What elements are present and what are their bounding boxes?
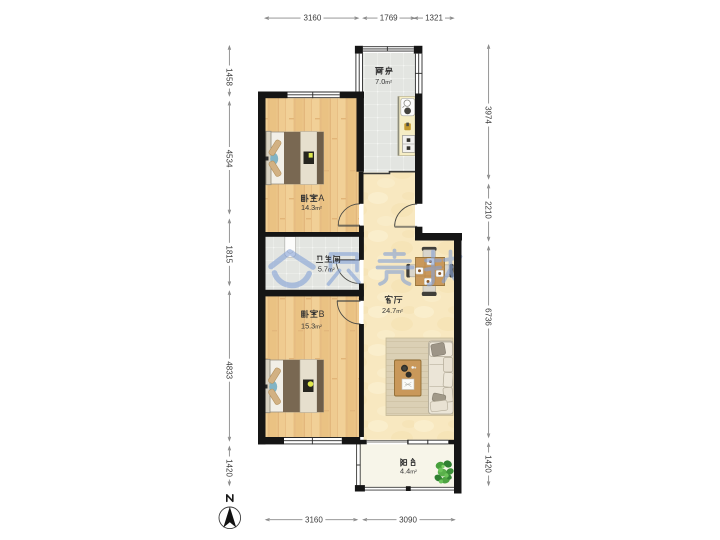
svg-text:4534: 4534	[224, 150, 233, 168]
svg-text:1769: 1769	[380, 14, 398, 23]
svg-text:1458: 1458	[224, 68, 233, 86]
svg-text:A: A	[318, 193, 324, 203]
svg-text:3160: 3160	[305, 515, 323, 524]
svg-text:1815: 1815	[224, 245, 233, 263]
svg-text:4833: 4833	[224, 361, 233, 379]
svg-text:3974: 3974	[484, 106, 493, 124]
svg-text:1420: 1420	[484, 455, 493, 473]
svg-text:3160: 3160	[304, 14, 322, 23]
svg-text:1321: 1321	[425, 14, 443, 23]
svg-text:1420: 1420	[224, 459, 233, 477]
svg-text:2210: 2210	[484, 201, 493, 219]
svg-text:3090: 3090	[399, 515, 417, 524]
svg-text:6736: 6736	[484, 308, 493, 326]
svg-text:B: B	[319, 309, 325, 319]
